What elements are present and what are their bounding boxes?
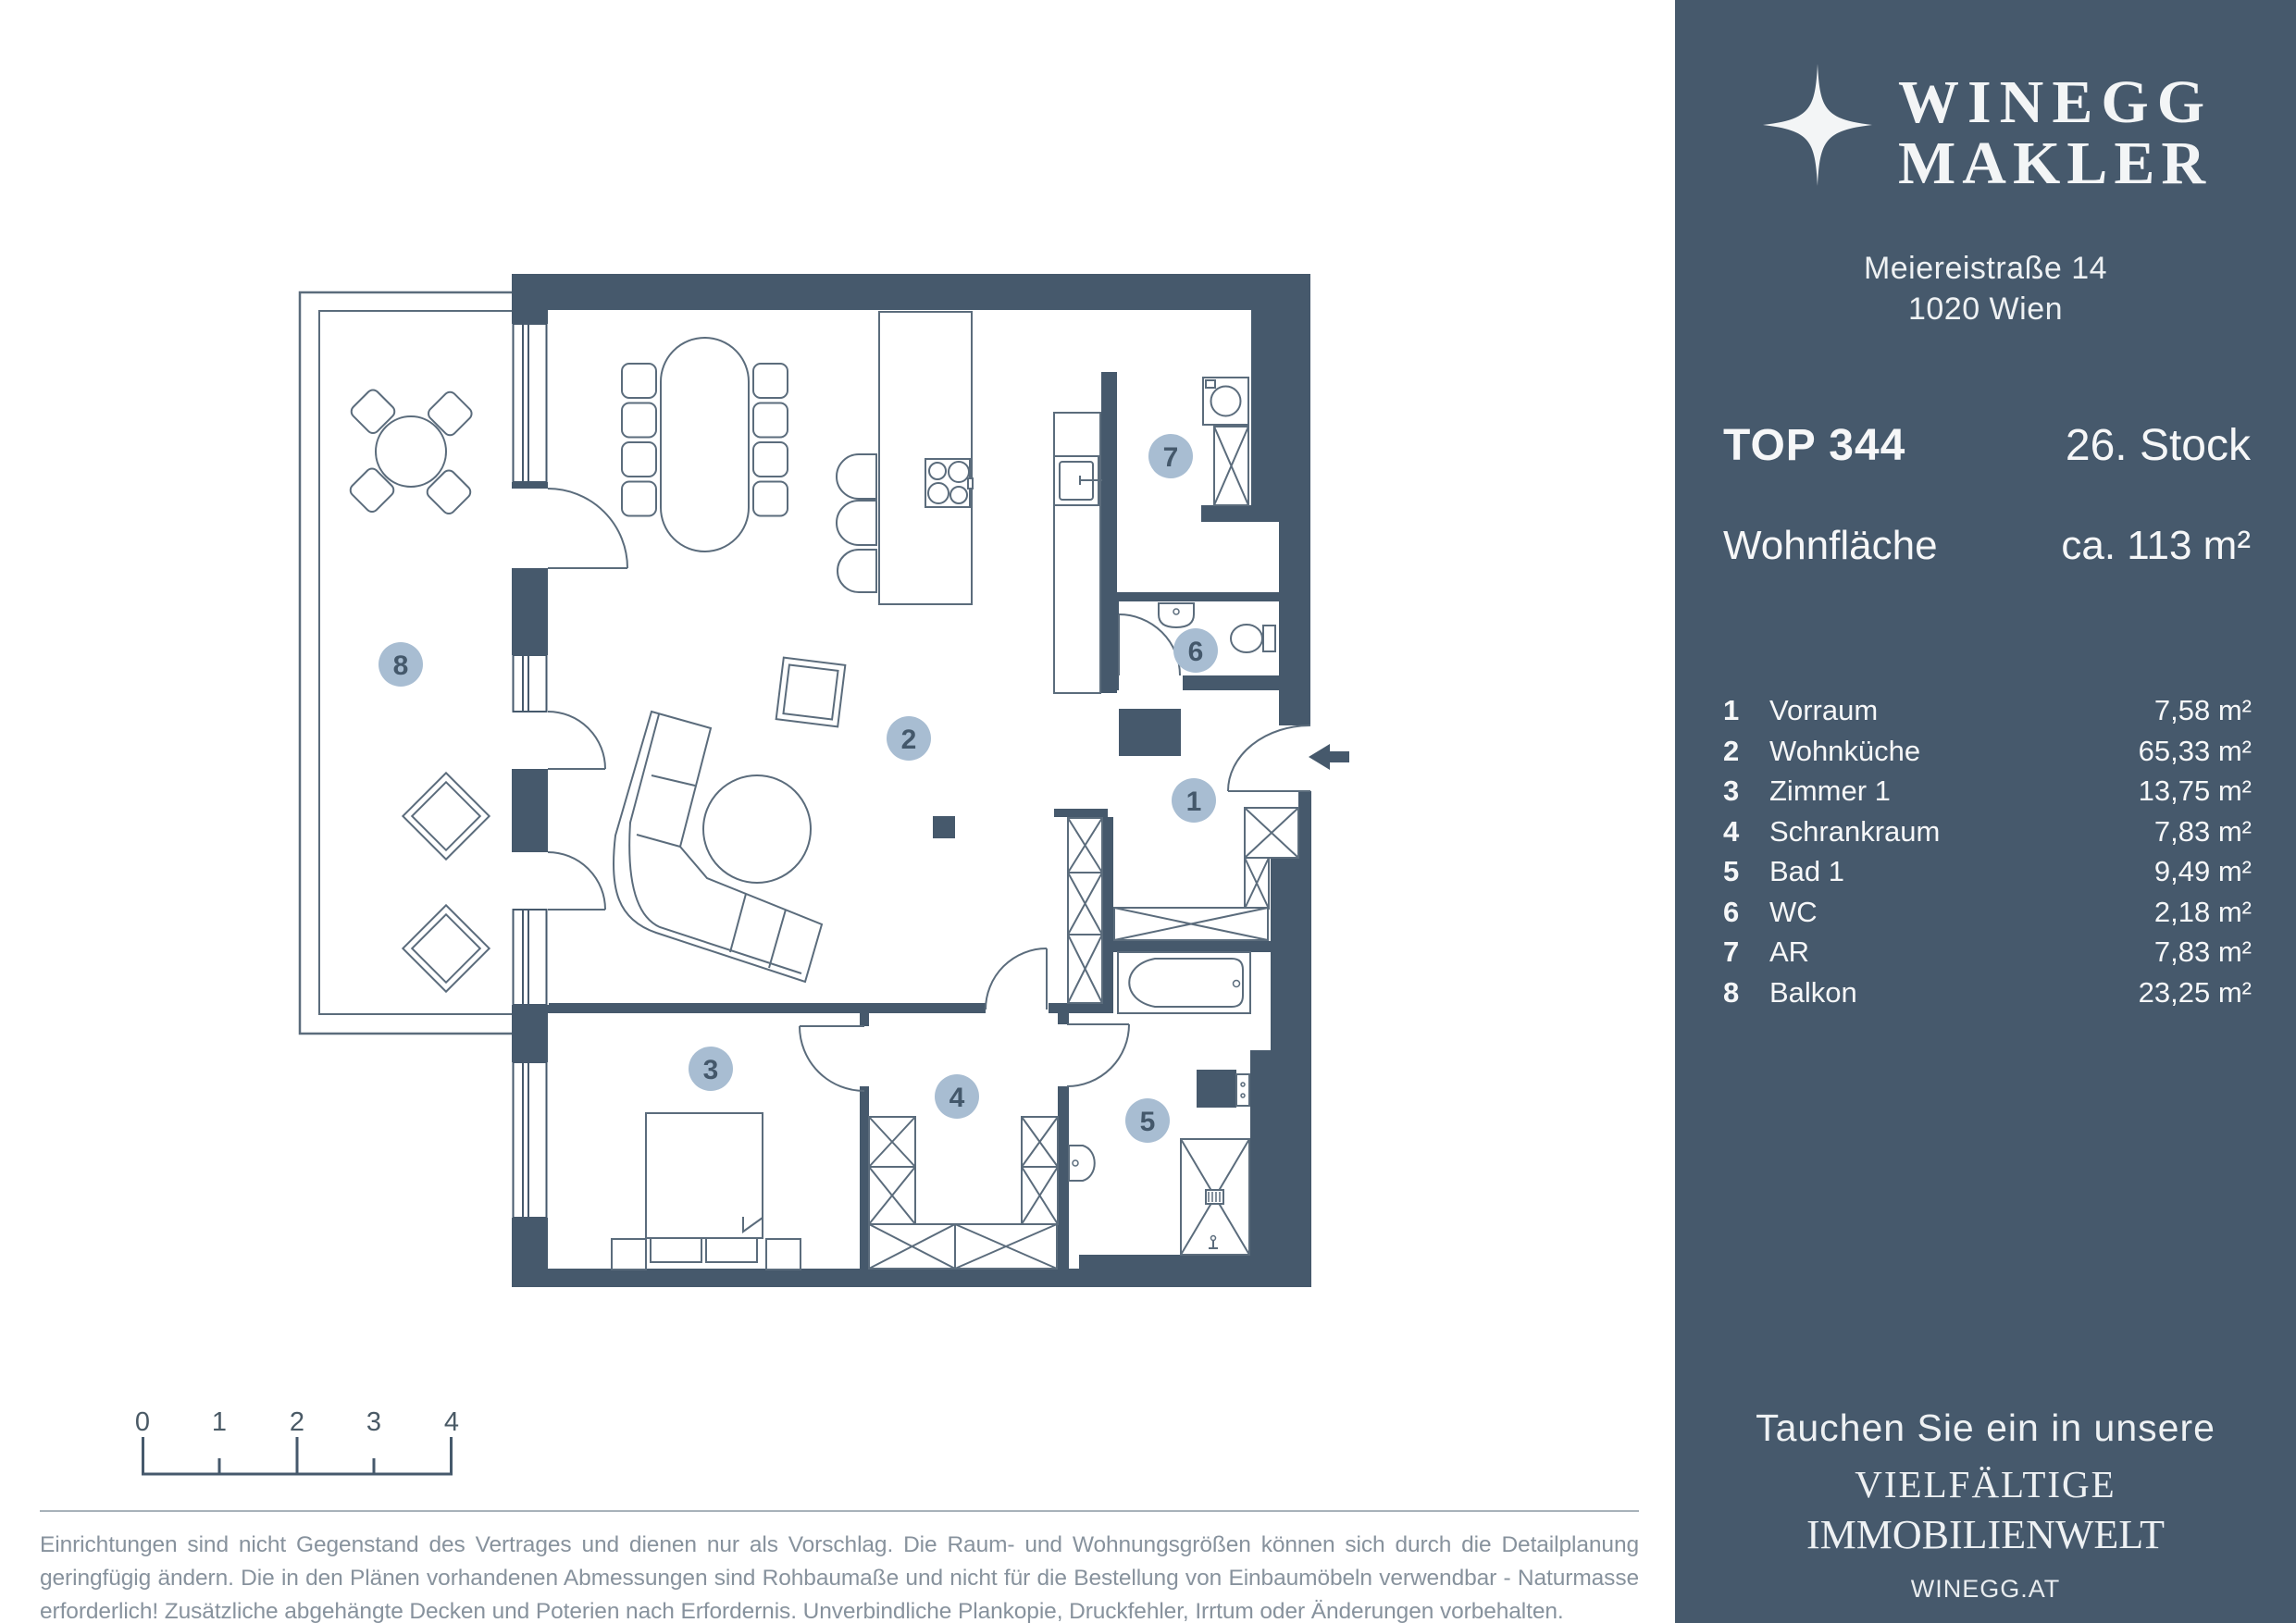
svg-text:2: 2 <box>290 1407 304 1437</box>
svg-text:4: 4 <box>949 1083 965 1113</box>
svg-text:2: 2 <box>901 725 917 755</box>
svg-text:6: 6 <box>1188 637 1204 667</box>
svg-text:8: 8 <box>393 650 409 681</box>
svg-text:3: 3 <box>703 1055 719 1085</box>
svg-text:WINEGG: WINEGG <box>1898 68 2213 136</box>
svg-text:5: 5 <box>1140 1107 1156 1137</box>
svg-text:7: 7 <box>1163 442 1179 473</box>
svg-text:4: 4 <box>444 1407 459 1437</box>
svg-text:0: 0 <box>135 1407 150 1437</box>
svg-text:3: 3 <box>366 1407 381 1437</box>
svg-text:1: 1 <box>1186 787 1202 817</box>
svg-text:1: 1 <box>212 1407 227 1437</box>
svg-text:MAKLER: MAKLER <box>1898 130 2212 197</box>
